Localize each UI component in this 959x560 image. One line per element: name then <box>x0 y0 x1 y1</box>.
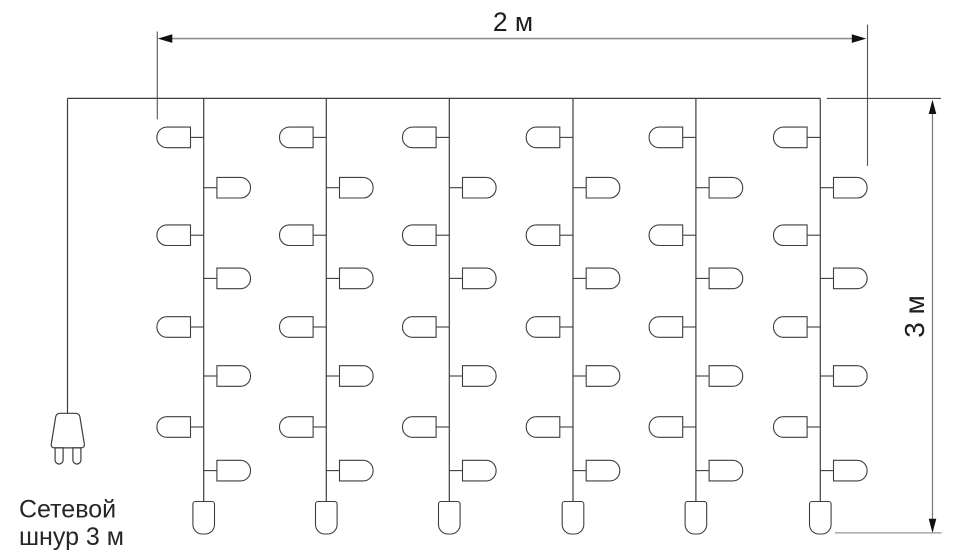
svg-text:3 м: 3 м <box>899 295 930 338</box>
svg-text:2 м: 2 м <box>493 7 533 37</box>
svg-text:шнур 3 м: шнур 3 м <box>19 523 124 551</box>
svg-text:Сетевой: Сетевой <box>19 496 116 524</box>
